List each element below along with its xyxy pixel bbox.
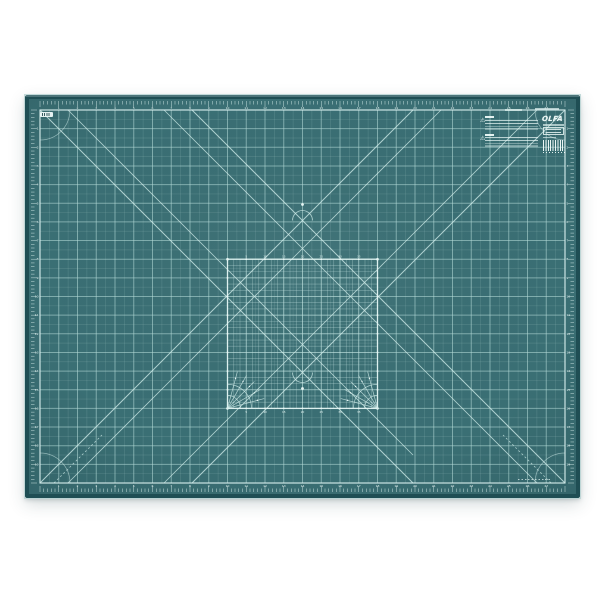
svg-text:19: 19	[566, 462, 570, 466]
svg-text:20: 20	[413, 484, 417, 488]
svg-text:10: 10	[566, 295, 570, 299]
svg-text:16: 16	[566, 406, 570, 410]
svg-text:7: 7	[170, 484, 172, 488]
svg-text:7: 7	[37, 239, 39, 243]
svg-text:10: 10	[226, 484, 230, 488]
svg-text:8: 8	[37, 257, 39, 261]
svg-text:18: 18	[35, 444, 39, 448]
svg-text:9: 9	[566, 276, 568, 280]
svg-text:25: 25	[319, 410, 323, 414]
model-micro-text	[543, 124, 564, 126]
svg-text:15: 15	[319, 484, 323, 488]
svg-text:5: 5	[566, 201, 568, 205]
svg-text:17: 17	[566, 425, 570, 429]
svg-text:23: 23	[469, 484, 473, 488]
svg-text:27: 27	[544, 484, 548, 488]
svg-text:22: 22	[451, 484, 455, 488]
svg-text:1: 1	[37, 127, 39, 131]
model-box	[543, 127, 564, 135]
cutting-mat: 1122334455667788991010111112121313141415…	[25, 95, 580, 498]
svg-text:5: 5	[133, 484, 135, 488]
svg-text:18: 18	[566, 444, 570, 448]
svg-text:18: 18	[376, 484, 380, 488]
svg-text:15: 15	[566, 388, 570, 392]
svg-text:10: 10	[263, 410, 267, 414]
svg-text:13: 13	[282, 484, 286, 488]
svg-text:5: 5	[37, 201, 39, 205]
svg-text:1: 1	[58, 484, 60, 488]
svg-text:7: 7	[566, 239, 568, 243]
svg-text:4: 4	[566, 183, 568, 187]
barcode	[543, 140, 565, 151]
svg-text:20: 20	[301, 410, 305, 414]
svg-text:10: 10	[35, 295, 39, 299]
panel-micro-text	[505, 109, 522, 111]
svg-text:35: 35	[357, 255, 361, 259]
svg-text:5: 5	[245, 255, 247, 259]
corner-sticker	[40, 112, 53, 117]
origin-micro-text	[535, 108, 559, 110]
svg-text:2: 2	[77, 484, 79, 488]
svg-text:16: 16	[35, 406, 39, 410]
svg-text:12: 12	[35, 332, 39, 336]
svg-text:14: 14	[35, 369, 39, 373]
svg-text:13: 13	[566, 350, 570, 354]
svg-text:19: 19	[35, 462, 39, 466]
svg-text:35: 35	[357, 410, 361, 414]
svg-text:30: 30	[338, 410, 342, 414]
size-micro-text	[543, 137, 556, 139]
svg-text:12: 12	[566, 332, 570, 336]
bottom-right-micro-text	[518, 479, 550, 481]
caution-header-chip	[485, 134, 494, 136]
svg-text:4: 4	[37, 183, 39, 187]
svg-text:4: 4	[114, 484, 116, 488]
svg-text:19: 19	[394, 484, 398, 488]
svg-text:13: 13	[35, 350, 39, 354]
svg-text:3: 3	[37, 164, 39, 168]
svg-text:12: 12	[263, 484, 267, 488]
svg-text:14: 14	[566, 369, 570, 373]
sticker-micro-text	[42, 113, 51, 115]
svg-text:2: 2	[37, 145, 39, 149]
warning-text-lines	[485, 120, 538, 132]
caution-text-lines	[485, 137, 538, 148]
svg-text:11: 11	[35, 313, 39, 317]
svg-text:26: 26	[526, 484, 530, 488]
svg-text:21: 21	[432, 484, 436, 488]
mat-grid-svg: 1122334455667788991010111112121313141415…	[25, 95, 580, 498]
svg-text:15: 15	[282, 255, 286, 259]
svg-text:5: 5	[245, 410, 247, 414]
svg-text:3: 3	[95, 484, 97, 488]
svg-text:6: 6	[566, 220, 568, 224]
svg-text:14: 14	[301, 484, 305, 488]
svg-text:9: 9	[37, 276, 39, 280]
svg-text:8: 8	[189, 484, 191, 488]
svg-text:6: 6	[37, 220, 39, 224]
svg-text:6: 6	[152, 484, 154, 488]
svg-text:11: 11	[244, 484, 248, 488]
svg-text:10: 10	[263, 255, 267, 259]
info-panel: ⚠ ⚠ OLFA	[480, 106, 570, 155]
model-box-text	[546, 129, 561, 133]
svg-text:11: 11	[566, 313, 570, 317]
svg-text:15: 15	[282, 410, 286, 414]
product-photo-canvas: 1122334455667788991010111112121313141415…	[0, 0, 600, 600]
warning-header-chip	[485, 116, 494, 118]
svg-text:25: 25	[507, 484, 511, 488]
brand-logo: OLFA	[542, 115, 566, 123]
svg-text:20: 20	[301, 255, 305, 259]
svg-text:25: 25	[319, 255, 323, 259]
svg-text:15: 15	[35, 388, 39, 392]
barcode-digits	[543, 152, 565, 154]
svg-text:3: 3	[566, 164, 568, 168]
svg-text:9: 9	[208, 484, 210, 488]
svg-text:16: 16	[338, 484, 342, 488]
svg-text:17: 17	[35, 425, 39, 429]
svg-text:8: 8	[566, 257, 568, 261]
svg-text:24: 24	[488, 484, 492, 488]
svg-text:30: 30	[338, 255, 342, 259]
svg-text:17: 17	[357, 484, 361, 488]
